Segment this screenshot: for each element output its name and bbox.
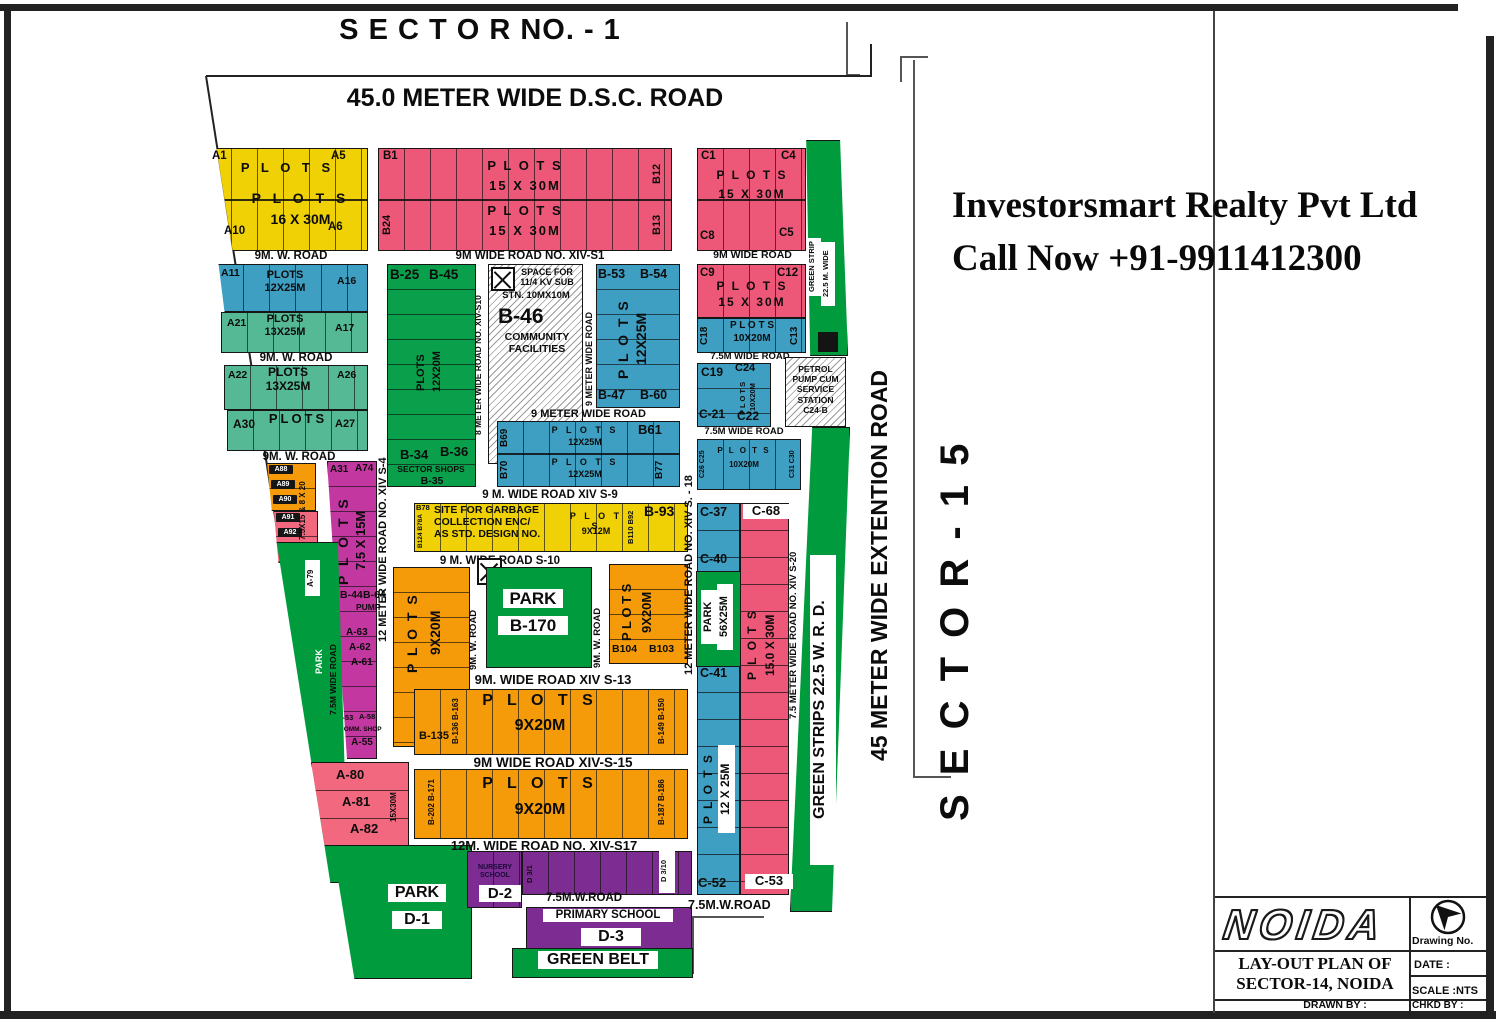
plots-label: P L O T S	[715, 446, 773, 455]
road-label-xiv-s20-v: 7.5 METER WIDE ROAD NO. XIV S-20	[789, 505, 803, 765]
plots-label: P L O T S 10X20M	[719, 320, 785, 345]
plot-id: B-25	[390, 267, 428, 282]
plot-id: B-187 B-186	[657, 771, 670, 833]
plot-id: B-47	[598, 388, 636, 402]
plot-id: A-79	[305, 560, 320, 596]
plots-label: P L O T S 15 X 30M	[465, 201, 585, 240]
plot-id: B-60	[640, 388, 678, 402]
plot-id: C18	[699, 320, 712, 351]
frame-bottom-border	[0, 1011, 1496, 1019]
plot-size-label: 9X20M	[470, 801, 610, 819]
corner-tick-2v	[900, 56, 902, 82]
plots-label: P L O T S	[230, 161, 345, 176]
plot-id: B-34	[400, 448, 438, 463]
plot-size-label: 15.0 X 30M	[764, 582, 780, 708]
plots-label: P L O T S	[467, 692, 613, 710]
park-label: PARK	[314, 636, 328, 688]
plots-label: P L O T S	[746, 598, 762, 692]
plot-id: C8	[700, 230, 726, 243]
road-label-xiv-s13: 9M. WIDE ROAD XIV S-13	[418, 673, 688, 688]
plot-id: D 3/10	[659, 849, 675, 893]
petrol-pump-label: PETROL PUMP CUM SERVICE STATION C24-B	[787, 364, 844, 415]
primary-school-label: PRIMARY SCHOOL	[543, 909, 673, 922]
nursery-school-label: NURSERY SCHOOL	[470, 864, 520, 880]
dsc-road-label: 45.0 METER WIDE D.S.C. ROAD	[310, 84, 760, 113]
sector-no-1-heading: S E C T O R NO. - 1	[270, 14, 690, 47]
promo-company-name: Investorsmart Realty Pvt Ltd	[952, 184, 1418, 227]
plot-id: A74	[355, 463, 379, 474]
plot-size-label: 15X30M	[389, 778, 402, 836]
titleblock-vertical-line	[1409, 896, 1411, 1013]
road-label-75m: 7.5M WIDE ROAD	[697, 427, 791, 438]
drawing-no-label: Drawing No.	[1412, 936, 1490, 948]
plot-id: C26 C25	[699, 441, 711, 488]
green-strips-wrd-label: GREEN STRIPS 22.5 W. R. D.	[810, 555, 836, 865]
plots-label: P L O T S	[620, 570, 636, 654]
plot-size-label: 9X20M	[640, 572, 656, 652]
plot-id: B124 B78A	[417, 511, 429, 551]
plots-label: P L O T S	[243, 191, 358, 207]
plot-id: B12	[651, 152, 665, 196]
sector-15-label: S E C T O R - 1 5	[933, 378, 985, 883]
plot-size-label: 12 X 25M	[718, 745, 735, 833]
plots-label: P L O T S	[405, 583, 422, 683]
titleblock-divider-3	[1410, 975, 1492, 977]
plots-label: P L O T S 15 X 30M	[465, 156, 585, 195]
road-label-9m-h: 9 METER WIDE ROAD	[497, 408, 680, 421]
plot-id: A-80	[336, 768, 378, 783]
plots-label: PLOTS	[258, 412, 338, 427]
drawing-title-line1: LAY-OUT PLAN OF	[1222, 954, 1408, 973]
kv-substation-note: SPACE FOR 11/4 KV SUB	[514, 267, 580, 288]
date-label: DATE :	[1414, 959, 1486, 972]
plot-id: B110 B92	[627, 504, 639, 550]
plot-id: C-40	[700, 552, 738, 566]
titleblock-divider-2	[1410, 950, 1492, 952]
green-belt-label: GREEN BELT	[538, 951, 658, 969]
promo-phone-number: Call Now +91-9911412300	[952, 237, 1362, 280]
green-strip-width-label: 22.5 M. WIDE	[821, 242, 835, 306]
road-label-75m-wide: 7.5M WIDE ROAD	[329, 628, 342, 732]
plot-id: C4	[781, 150, 807, 163]
north-boundary-tick	[870, 44, 872, 77]
road-label-9m: 9M WIDE ROAD	[699, 250, 806, 262]
road-label-xiv-s4-v: 12 METER WIDE ROAD NO. XIV S-4	[377, 320, 394, 780]
plot-id: A-55	[344, 737, 380, 748]
plot-id: A26	[337, 370, 365, 382]
plot-size-label: 12X25M	[634, 291, 650, 387]
noida-logo: NOIDA	[1221, 901, 1388, 949]
plot-id: C13	[789, 320, 802, 351]
sector-shops-label: SECTOR SHOPS	[391, 465, 471, 475]
plot-size-label: 12X20M	[431, 322, 445, 422]
plot-id-chip: A91	[276, 513, 300, 522]
plots-label: P L O T S	[530, 425, 640, 435]
plot-id: C1	[701, 150, 727, 163]
north-arrow-icon	[1424, 898, 1472, 938]
plot-size-label: 7.5 X 15M	[354, 476, 370, 604]
titleblock-divider-1	[1215, 950, 1411, 952]
frame-right-border	[1486, 36, 1494, 1016]
plots-label: P L O T S	[530, 457, 640, 467]
plot-id: B-149 B-150	[657, 690, 670, 752]
plot-id-b46: B-46	[498, 305, 562, 329]
road-label-xiv-s17: 12M. WIDE ROAD NO. XIV-S17	[398, 839, 690, 854]
kv-substation-note-2: STN. 10MX10M	[492, 291, 580, 302]
plot-id: B77	[654, 454, 667, 486]
park-label: PARK	[701, 590, 717, 644]
plot-id: B24	[381, 202, 395, 248]
plot-id: B-35	[410, 476, 454, 488]
plot-id: B70	[499, 455, 512, 485]
extension-road-label: 45 METER WIDE EXTENTION ROAD	[866, 295, 896, 835]
plot-id-chip: A90	[273, 495, 297, 504]
plot-id: D 3/1	[526, 855, 538, 893]
road-label-75mw: 7.5M.W.ROAD	[524, 892, 644, 905]
plot-id: B-93	[644, 504, 688, 520]
plots-label: P L O T S 15 X 30M	[707, 166, 797, 204]
plot-id: A6	[328, 221, 354, 234]
plot-id: A27	[335, 418, 363, 431]
plot-id: B69	[499, 423, 512, 453]
plot-id: A10	[224, 225, 254, 238]
park-label: PARK	[503, 589, 563, 608]
plot-size-label: 12X25M	[530, 469, 640, 479]
plot-size-label: 10X20M	[715, 460, 773, 469]
chkd-by-label: CHKD BY :	[1412, 1000, 1492, 1011]
north-boundary-line	[206, 75, 872, 77]
plots-label: P L O T S	[470, 775, 610, 793]
plot-id: A-63	[346, 627, 378, 638]
frame-left-border	[4, 4, 11, 1014]
plot-id-chip: A89	[271, 480, 295, 489]
plot-id: A16	[337, 276, 365, 288]
garbage-site-label: SITE FOR GARBAGE COLLECTION ENC/ AS STD.…	[434, 505, 562, 541]
school-id: D-3	[581, 928, 641, 946]
frame-top-border	[0, 4, 1458, 11]
plots-label: P L O T S	[616, 293, 632, 385]
plot-size-label: 9X12M	[564, 526, 628, 536]
drawn-by-label: DRAWN BY :	[1275, 1000, 1395, 1012]
plots-label: P L O T S 15 X 30M	[707, 279, 797, 310]
plot-id: C-21	[699, 408, 735, 422]
plot-id: A11	[221, 268, 249, 280]
plot-id: C22	[737, 410, 769, 424]
plot-id: B13	[651, 202, 665, 248]
landmark-square	[818, 332, 838, 352]
plot-id: C31 C30	[789, 441, 801, 488]
plot-id: C5	[779, 227, 805, 240]
plot-id: A17	[335, 323, 363, 335]
park-id: B-170	[498, 616, 568, 635]
plot-id: B61	[638, 423, 672, 438]
plot-id: B-136 B-163	[451, 690, 464, 752]
green-strip-label: GREEN STRIP	[807, 238, 821, 296]
road-label-xiv-s9: 9 M. WIDE ROAD XIV S-9	[420, 489, 680, 502]
plot-id: A-82	[350, 822, 392, 837]
community-facilities-label: COMMUNITY FACILITIES	[494, 332, 580, 356]
substation-cross-icon	[491, 267, 515, 291]
plot-id: B104	[612, 644, 648, 656]
school-id: D-2	[479, 885, 521, 902]
park-label: PARK	[388, 884, 446, 902]
plot-size-label: 12X25M	[530, 437, 640, 447]
plot-id: B-202 B-171	[427, 771, 440, 833]
plots-label: PLOTS	[415, 325, 429, 420]
road-label-9m-w-road: 9M. W. ROAD	[224, 352, 368, 365]
sector-boundary-line	[913, 60, 915, 778]
plot-id: C-37	[700, 505, 738, 519]
plot-size-label: 9X20M	[467, 717, 613, 735]
plot-id: C-41	[700, 666, 738, 680]
plot-id: C24	[735, 362, 765, 375]
plots-label: PLOTS 12X25M	[250, 269, 320, 294]
plot-id: C19	[701, 366, 733, 380]
corner-tick-1v	[846, 22, 848, 76]
park-size-label: 56X25M	[717, 584, 733, 650]
sheet-margin-line	[1213, 11, 1215, 1013]
plots-label: PLOTS 13X25M	[248, 313, 322, 338]
plot-id: B103	[649, 644, 685, 656]
plot-id: C-68	[743, 504, 789, 519]
south-boundary-h	[692, 916, 764, 918]
plots-label: P L O T S	[702, 752, 717, 826]
road-label-9m-w-road: 9M. W. ROAD	[215, 250, 367, 263]
scale-label: SCALE :NTS	[1412, 985, 1490, 998]
plot-id: B-53	[598, 267, 636, 281]
plot-id: C-52	[698, 876, 738, 891]
plot-id: C-53	[745, 874, 793, 889]
road-label-xiv-s1: 9M WIDE ROAD NO. XIV-S1	[388, 250, 672, 263]
park-id: D-1	[392, 911, 442, 929]
drawing-title-line2: SECTOR-14, NOIDA	[1222, 974, 1408, 993]
plots-label: PLOTS 13X25M	[250, 366, 326, 393]
road-label-75mw: 7.5M.W.ROAD	[688, 898, 792, 912]
plot-id: B-54	[640, 267, 678, 281]
plot-id: A31	[330, 464, 354, 475]
plot-id: B-45	[429, 267, 467, 282]
plot-id: A-81	[342, 795, 384, 810]
plot-id: B-36	[440, 445, 478, 460]
layout-plan-canvas: S E C T O R NO. - 1 45.0 METER WIDE D.S.…	[0, 0, 1500, 1023]
plot-size-label: 9X20M	[428, 586, 445, 680]
corner-tick-2h	[900, 56, 928, 58]
road-label-xiv-s10-v: 8 METER WIDE ROAD NO. XIV-S10	[474, 266, 487, 464]
plot-id-chip: A88	[269, 465, 293, 474]
plot-id: B1	[383, 150, 409, 163]
